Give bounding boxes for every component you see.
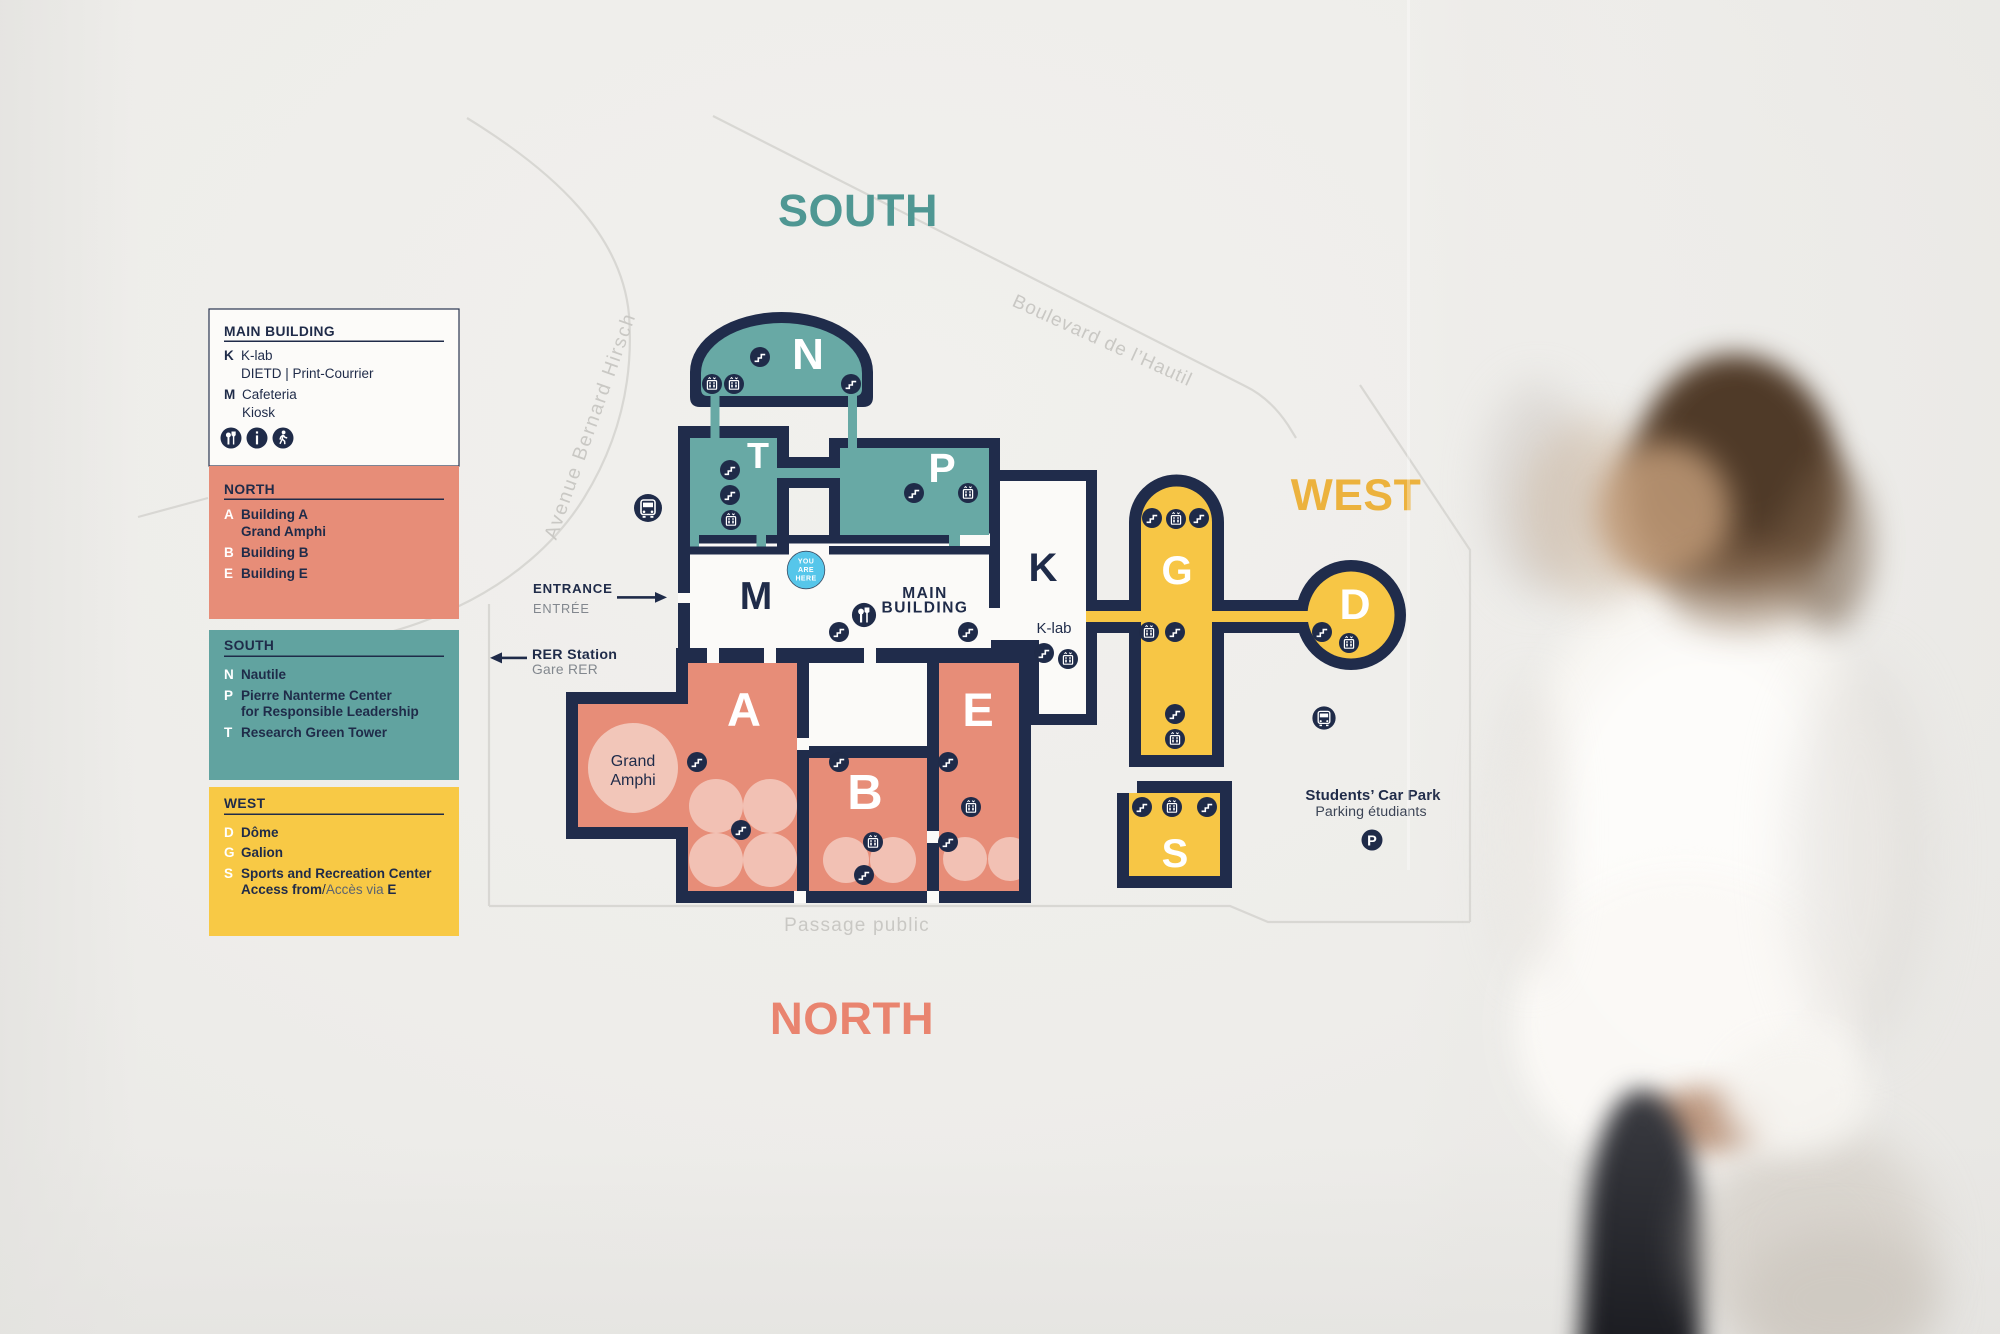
svg-text:M: M xyxy=(224,387,235,402)
svg-text:WEST: WEST xyxy=(1291,471,1422,520)
svg-text:Access from/Accès via E: Access from/Accès via E xyxy=(241,882,396,897)
svg-text:Kiosk: Kiosk xyxy=(242,405,275,420)
svg-text:P: P xyxy=(928,445,955,491)
svg-text:Cafeteria: Cafeteria xyxy=(242,387,297,402)
svg-text:D: D xyxy=(1339,581,1370,629)
svg-text:YOU: YOU xyxy=(798,559,814,566)
svg-text:DIETD | Print-Courrier: DIETD | Print-Courrier xyxy=(241,366,374,381)
svg-text:B: B xyxy=(847,766,882,820)
svg-text:NORTH: NORTH xyxy=(224,482,275,497)
svg-text:Avenue Bernard Hirsch: Avenue Bernard Hirsch xyxy=(540,310,641,543)
svg-text:M: M xyxy=(740,575,773,618)
svg-text:Nautile: Nautile xyxy=(241,667,287,682)
svg-text:Galion: Galion xyxy=(241,845,283,860)
svg-text:WEST: WEST xyxy=(224,796,266,811)
svg-text:B: B xyxy=(224,545,234,560)
svg-text:A: A xyxy=(727,683,761,736)
svg-text:Gare RER: Gare RER xyxy=(532,662,598,677)
svg-text:NORTH: NORTH xyxy=(770,993,934,1044)
svg-text:Grand: Grand xyxy=(611,753,655,770)
svg-text:T: T xyxy=(747,435,769,476)
svg-text:D: D xyxy=(224,825,234,840)
svg-text:SOUTH: SOUTH xyxy=(224,638,274,653)
svg-text:ENTRANCE: ENTRANCE xyxy=(533,581,613,596)
svg-text:Passage public: Passage public xyxy=(784,915,930,936)
svg-text:N: N xyxy=(792,330,824,379)
svg-text:for Responsible Leadership: for Responsible Leadership xyxy=(241,704,419,719)
svg-text:Dôme: Dôme xyxy=(241,825,279,840)
svg-text:S: S xyxy=(1162,832,1189,876)
svg-text:Building E: Building E xyxy=(241,566,308,581)
svg-text:Boulevard de l’Hautil: Boulevard de l’Hautil xyxy=(1009,291,1195,391)
svg-text:K: K xyxy=(1029,546,1058,590)
svg-text:HERE: HERE xyxy=(795,576,816,583)
svg-text:ARE: ARE xyxy=(798,567,814,574)
svg-text:BUILDING: BUILDING xyxy=(882,600,969,617)
svg-text:P: P xyxy=(224,688,233,703)
svg-text:G: G xyxy=(224,845,235,860)
svg-text:SOUTH: SOUTH xyxy=(778,185,938,236)
svg-text:Building A: Building A xyxy=(241,507,308,522)
svg-text:Grand Amphi: Grand Amphi xyxy=(241,524,326,539)
svg-text:RER Station: RER Station xyxy=(532,647,617,663)
svg-text:N: N xyxy=(224,667,234,682)
svg-text:Research Green Tower: Research Green Tower xyxy=(241,725,388,740)
svg-text:K-lab: K-lab xyxy=(1036,620,1071,637)
svg-text:K-lab: K-lab xyxy=(241,348,273,363)
svg-text:Sports and Recreation Center: Sports and Recreation Center xyxy=(241,866,432,881)
svg-text:A: A xyxy=(224,507,234,522)
svg-text:E: E xyxy=(224,566,233,581)
svg-text:MAIN BUILDING: MAIN BUILDING xyxy=(224,324,335,339)
svg-text:T: T xyxy=(224,725,233,740)
svg-text:Building B: Building B xyxy=(241,545,309,560)
svg-text:K: K xyxy=(224,348,234,363)
svg-text:ENTRÉE: ENTRÉE xyxy=(533,601,590,616)
svg-text:S: S xyxy=(224,866,233,881)
svg-text:E: E xyxy=(962,683,993,736)
svg-text:G: G xyxy=(1161,549,1192,593)
svg-text:Amphi: Amphi xyxy=(610,772,655,789)
svg-text:Pierre Nanterme Center: Pierre Nanterme Center xyxy=(241,688,393,703)
